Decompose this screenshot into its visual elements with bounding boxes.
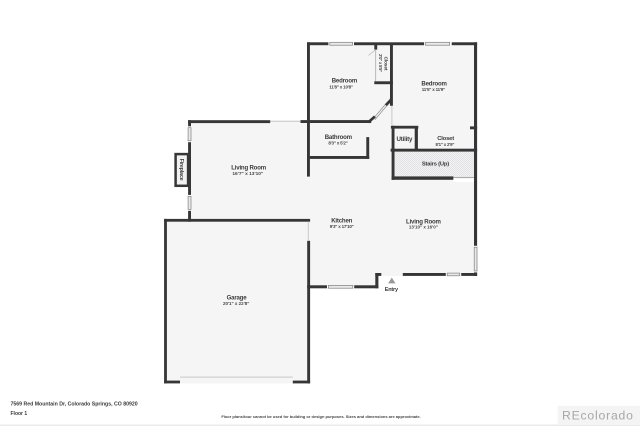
svg-text:20'1" x 22'8": 20'1" x 22'8": [223, 301, 249, 306]
svg-text:Utility: Utility: [397, 136, 414, 143]
svg-text:8'1" x 2'9": 8'1" x 2'9": [436, 142, 455, 147]
svg-text:Entry: Entry: [385, 287, 399, 293]
svg-text:Living Room: Living Room: [231, 165, 266, 172]
svg-text:13'10" x 16'0": 13'10" x 16'0": [409, 224, 438, 229]
svg-text:8'3" x 5'2": 8'3" x 5'2": [328, 140, 347, 145]
svg-text:9'3" x 17'10": 9'3" x 17'10": [330, 224, 354, 229]
svg-text:Floor plans/tour cannot be use: Floor plans/tour cannot be used for buil…: [221, 414, 420, 419]
svg-text:Fireplace: Fireplace: [178, 159, 184, 181]
svg-text:Floor 1: Floor 1: [11, 411, 28, 417]
svg-text:16'7" x 13'10": 16'7" x 13'10": [232, 171, 263, 177]
svg-text:11'8" x 10'8": 11'8" x 10'8": [329, 84, 353, 89]
svg-text:11'5" x 11'9": 11'5" x 11'9": [422, 87, 445, 92]
svg-text:REcolorado: REcolorado: [562, 409, 634, 423]
svg-text:2'0" x 5'5": 2'0" x 5'5": [378, 54, 383, 72]
svg-text:7569 Red Mountain Dr, Colorado: 7569 Red Mountain Dr, Colorado Springs, …: [11, 401, 138, 407]
svg-text:Stairs (Up): Stairs (Up): [422, 162, 449, 168]
svg-text:Bedroom: Bedroom: [332, 77, 358, 84]
